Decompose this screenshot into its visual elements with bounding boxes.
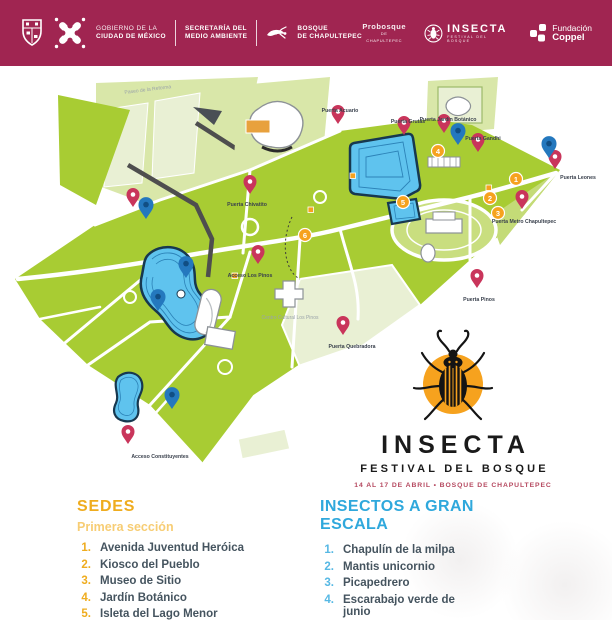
- item-label: Escarabajo verde de junio: [343, 594, 461, 619]
- festival-date: 14 AL 17 DE ABRIL • BOSQUE DE CHAPULTEPE…: [348, 482, 558, 489]
- gobierno-label: GOBIERNO DE LA CIUDAD DE MÉXICO: [96, 25, 166, 42]
- secretaria-label: SECRETARÍA DEL MEDIO AMBIENTE: [185, 25, 247, 42]
- fundacion-coppel-logo: Fundación Coppel: [530, 24, 592, 42]
- bug-badge-icon: [424, 24, 443, 43]
- header-bar: GOBIERNO DE LA CIUDAD DE MÉXICO SECRETAR…: [0, 0, 612, 66]
- header-right-logos: Probosque de Chapultepec INSECTA FESTIVA…: [362, 23, 592, 44]
- grasshopper-icon: [266, 26, 288, 40]
- lago-sw: [114, 373, 142, 422]
- cdmx-logo: [53, 16, 87, 50]
- probosque-logo: Probosque de Chapultepec: [362, 23, 406, 44]
- item-label: Jardín Botánico: [100, 592, 187, 605]
- header-divider: [175, 20, 176, 46]
- svg-text:Acceso Constituyentes: Acceso Constituyentes: [131, 454, 188, 460]
- venue-marker: 1: [510, 173, 523, 186]
- svg-text:Puerta Leones: Puerta Leones: [560, 175, 596, 181]
- svg-text:Puerta Chivatito: Puerta Chivatito: [227, 202, 267, 208]
- item-number: 1.: [77, 542, 91, 555]
- sedes-list: SEDES Primera sección 1.Avenida Juventud…: [77, 498, 307, 620]
- item-number: 1.: [320, 544, 334, 557]
- list-item: 4.Escarabajo verde de junio: [320, 594, 505, 619]
- item-label: Kiosco del Pueblo: [100, 559, 200, 572]
- list-item: 1.Avenida Juventud Heróica: [77, 542, 307, 555]
- item-label: Avenida Juventud Heróica: [100, 542, 244, 555]
- svg-text:5: 5: [401, 198, 405, 207]
- item-number: 2.: [77, 559, 91, 572]
- header-left-logos: GOBIERNO DE LA CIUDAD DE MÉXICO SECRETAR…: [20, 16, 362, 50]
- item-label: Isleta del Lago Menor: [100, 608, 218, 620]
- festival-title: INSECTA: [348, 431, 558, 460]
- item-number: 4.: [77, 592, 91, 605]
- venue-marker: 6: [299, 229, 312, 242]
- item-label: Picapedrero: [343, 577, 409, 590]
- list-item: 4.Jardín Botánico: [77, 592, 307, 605]
- park-map: Paseo de la Reforma: [0, 66, 612, 492]
- list-item: 2.Mantis unicornio: [320, 561, 505, 574]
- svg-text:Puerta Jardín Botánico: Puerta Jardín Botánico: [420, 117, 477, 123]
- los-pinos-label: Centro Cultural Los Pinos: [262, 315, 319, 321]
- festival-subtitle: FESTIVAL DEL BOSQUE: [348, 463, 558, 475]
- list-item: 3.Museo de Sitio: [77, 575, 307, 588]
- venue-marker: 3: [492, 207, 505, 220]
- item-label: Chapulín de la milpa: [343, 544, 455, 557]
- bosque-label: BOSQUE DE CHAPULTEPEC: [297, 25, 362, 42]
- venue-marker: 2: [484, 192, 497, 205]
- svg-text:2: 2: [488, 194, 492, 203]
- sedes-subtitle: Primera sección: [77, 520, 307, 534]
- item-label: Museo de Sitio: [100, 575, 181, 588]
- venue-marker: 4: [432, 145, 445, 158]
- list-item: 5.Isleta del Lago Menor: [77, 608, 307, 620]
- list-item: 3.Picapedrero: [320, 577, 505, 590]
- header-divider: [256, 20, 257, 46]
- svg-text:6: 6: [303, 231, 307, 240]
- item-number: 3.: [320, 577, 334, 590]
- insectos-title: INSECTOS A GRAN ESCALA: [320, 498, 505, 534]
- insecta-mini-logo: INSECTA FESTIVAL DEL BOSQUE: [424, 24, 512, 43]
- svg-text:1: 1: [514, 175, 518, 184]
- svg-text:Acceso Los Pinos: Acceso Los Pinos: [228, 273, 273, 279]
- venue-marker: 5: [397, 196, 410, 209]
- insectos-list: INSECTOS A GRAN ESCALA 1.Chapulín de la …: [320, 498, 505, 620]
- svg-text:Puerta Gandhi: Puerta Gandhi: [465, 136, 501, 142]
- svg-text:Puerta Metro Chapultepec: Puerta Metro Chapultepec: [492, 219, 556, 225]
- insectos-items: 1.Chapulín de la milpa2.Mantis unicornio…: [320, 544, 505, 620]
- cdmx-shield-icon: [20, 18, 44, 48]
- item-number: 5.: [77, 608, 91, 620]
- sedes-items: 1.Avenida Juventud Heróica2.Kiosco del P…: [77, 542, 307, 620]
- watermark: [500, 520, 612, 620]
- item-label: Mantis unicornio: [343, 561, 435, 574]
- svg-text:Puerta Pinos: Puerta Pinos: [463, 297, 495, 303]
- beetle-icon: [398, 324, 508, 429]
- svg-text:Puerta Acuario: Puerta Acuario: [322, 108, 359, 114]
- page: GOBIERNO DE LA CIUDAD DE MÉXICO SECRETAR…: [0, 0, 612, 620]
- item-number: 2.: [320, 561, 334, 574]
- item-number: 3.: [77, 575, 91, 588]
- list-item: 2.Kiosco del Pueblo: [77, 559, 307, 572]
- list-item: 1.Chapulín de la milpa: [320, 544, 505, 557]
- svg-text:3: 3: [496, 209, 500, 218]
- coppel-bird-icon: [530, 24, 547, 42]
- insecta-logo: INSECTA FESTIVAL DEL BOSQUE 14 AL 17 DE …: [348, 324, 558, 489]
- sedes-title: SEDES: [77, 498, 307, 516]
- item-number: 4.: [320, 594, 334, 607]
